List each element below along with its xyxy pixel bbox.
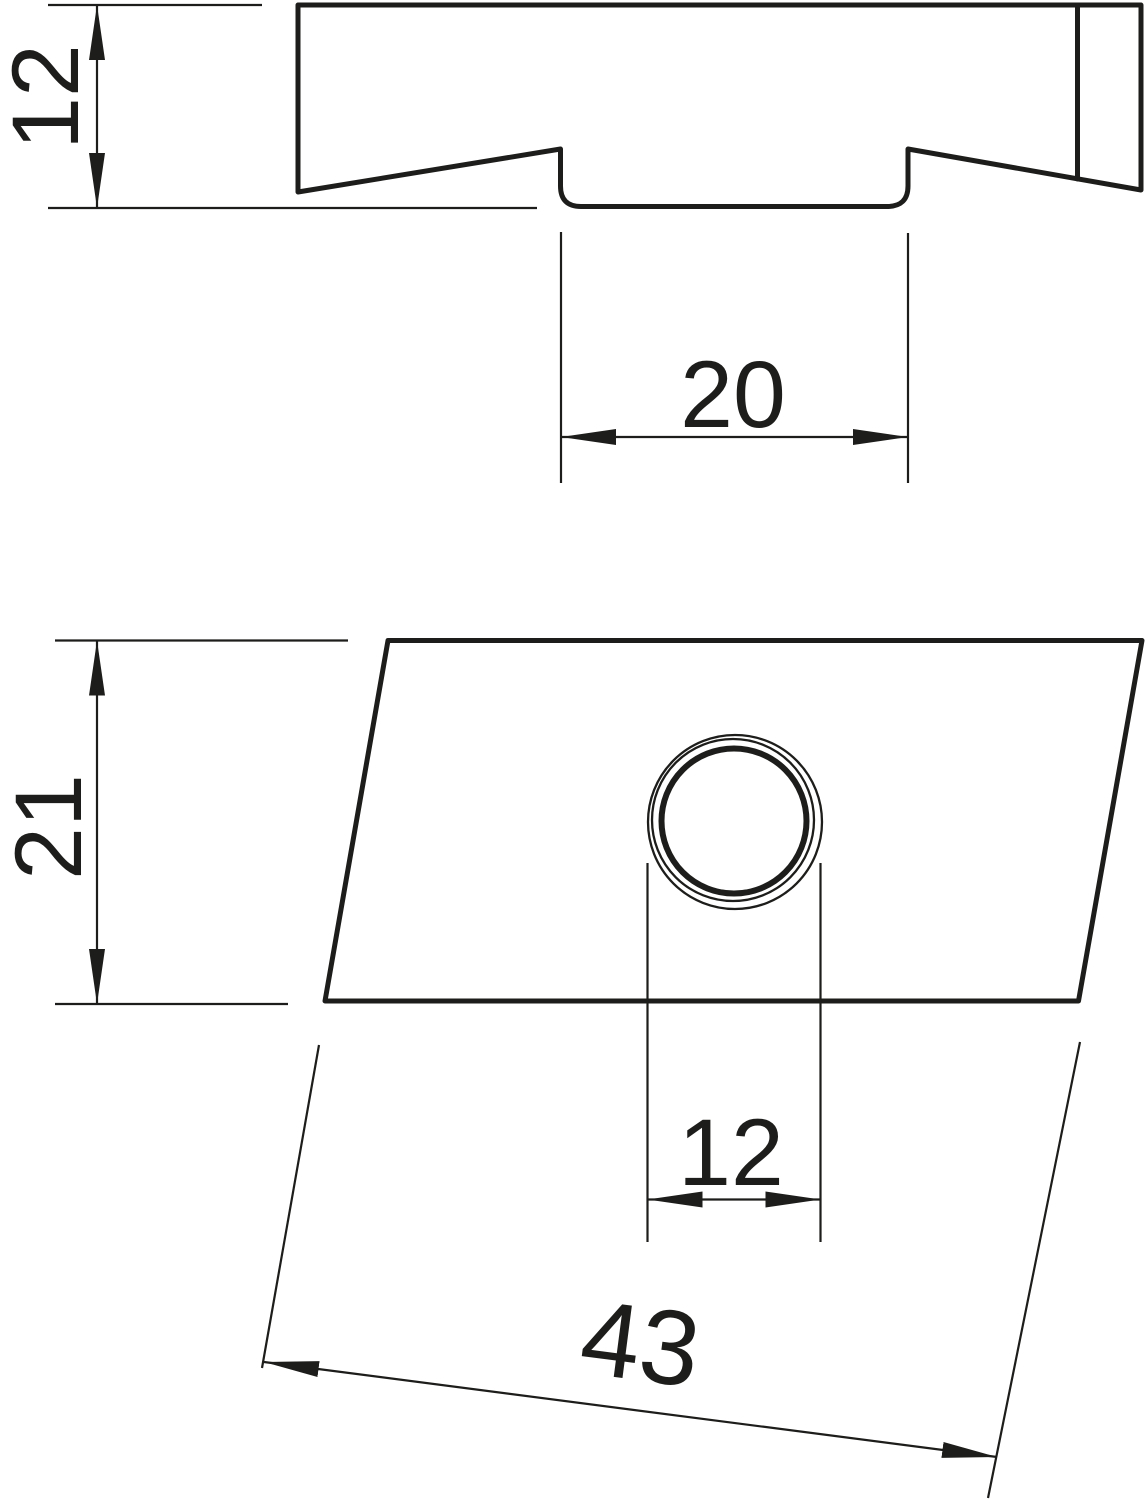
dimension-channel-width: 20 bbox=[561, 232, 908, 483]
dimension-hole-diameter: 12 bbox=[648, 863, 821, 1242]
thread-outer-circle-offset bbox=[652, 739, 814, 901]
dimension-label: 12 bbox=[678, 1100, 784, 1206]
extension-line bbox=[262, 1045, 319, 1368]
drawing-page: 12 20 2 bbox=[0, 0, 1145, 1500]
dimension-label: 21 bbox=[0, 774, 102, 880]
dimension-plan-width: 21 bbox=[0, 641, 348, 1005]
technical-drawing-canvas: 12 20 2 bbox=[0, 0, 1145, 1500]
dimension-label: 12 bbox=[0, 44, 99, 150]
dimension-plan-length: 43 bbox=[262, 1042, 1080, 1498]
profile-outline bbox=[298, 5, 1141, 207]
plan-outline bbox=[325, 641, 1142, 1002]
thread-outer-circle bbox=[648, 735, 822, 909]
extension-line bbox=[988, 1042, 1080, 1498]
profile-view: 12 20 bbox=[0, 5, 1141, 483]
dimension-label: 20 bbox=[680, 342, 786, 448]
plan-view: 21 12 43 bbox=[0, 641, 1142, 1499]
threaded-hole bbox=[648, 735, 822, 909]
dimension-label: 43 bbox=[574, 1278, 706, 1410]
dimension-profile-height: 12 bbox=[0, 5, 537, 208]
hole-core-circle bbox=[662, 749, 807, 894]
